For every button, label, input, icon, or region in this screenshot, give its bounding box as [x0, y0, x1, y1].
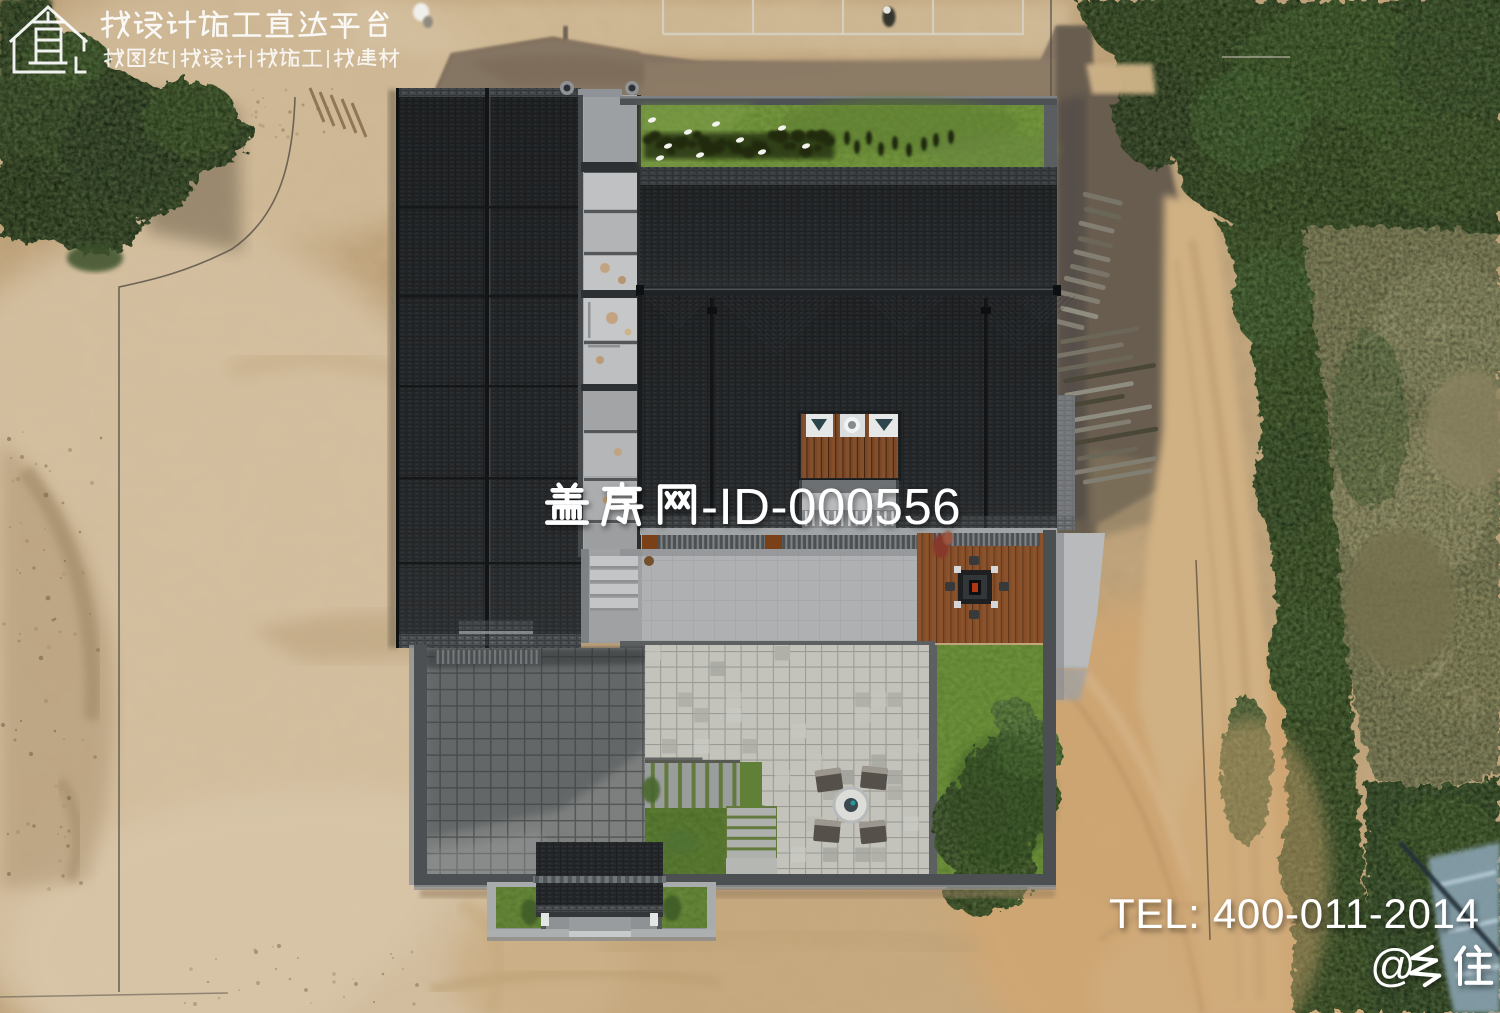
svg-text:TEL: 400-011-2014: TEL: 400-011-2014: [1109, 890, 1480, 937]
svg-text:@: @: [1370, 940, 1416, 991]
svg-text:-ID-000556: -ID-000556: [701, 478, 961, 535]
